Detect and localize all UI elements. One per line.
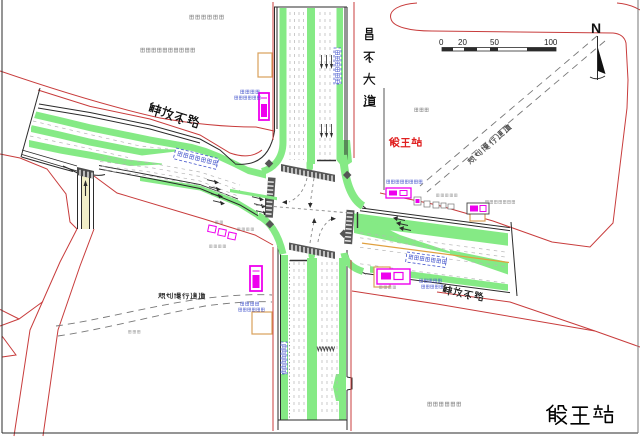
svg-text:20: 20 (458, 38, 467, 47)
svg-text:100: 100 (544, 38, 558, 47)
svg-text:50: 50 (490, 38, 499, 47)
svg-text:N: N (591, 20, 601, 36)
svg-text:0: 0 (439, 38, 444, 47)
